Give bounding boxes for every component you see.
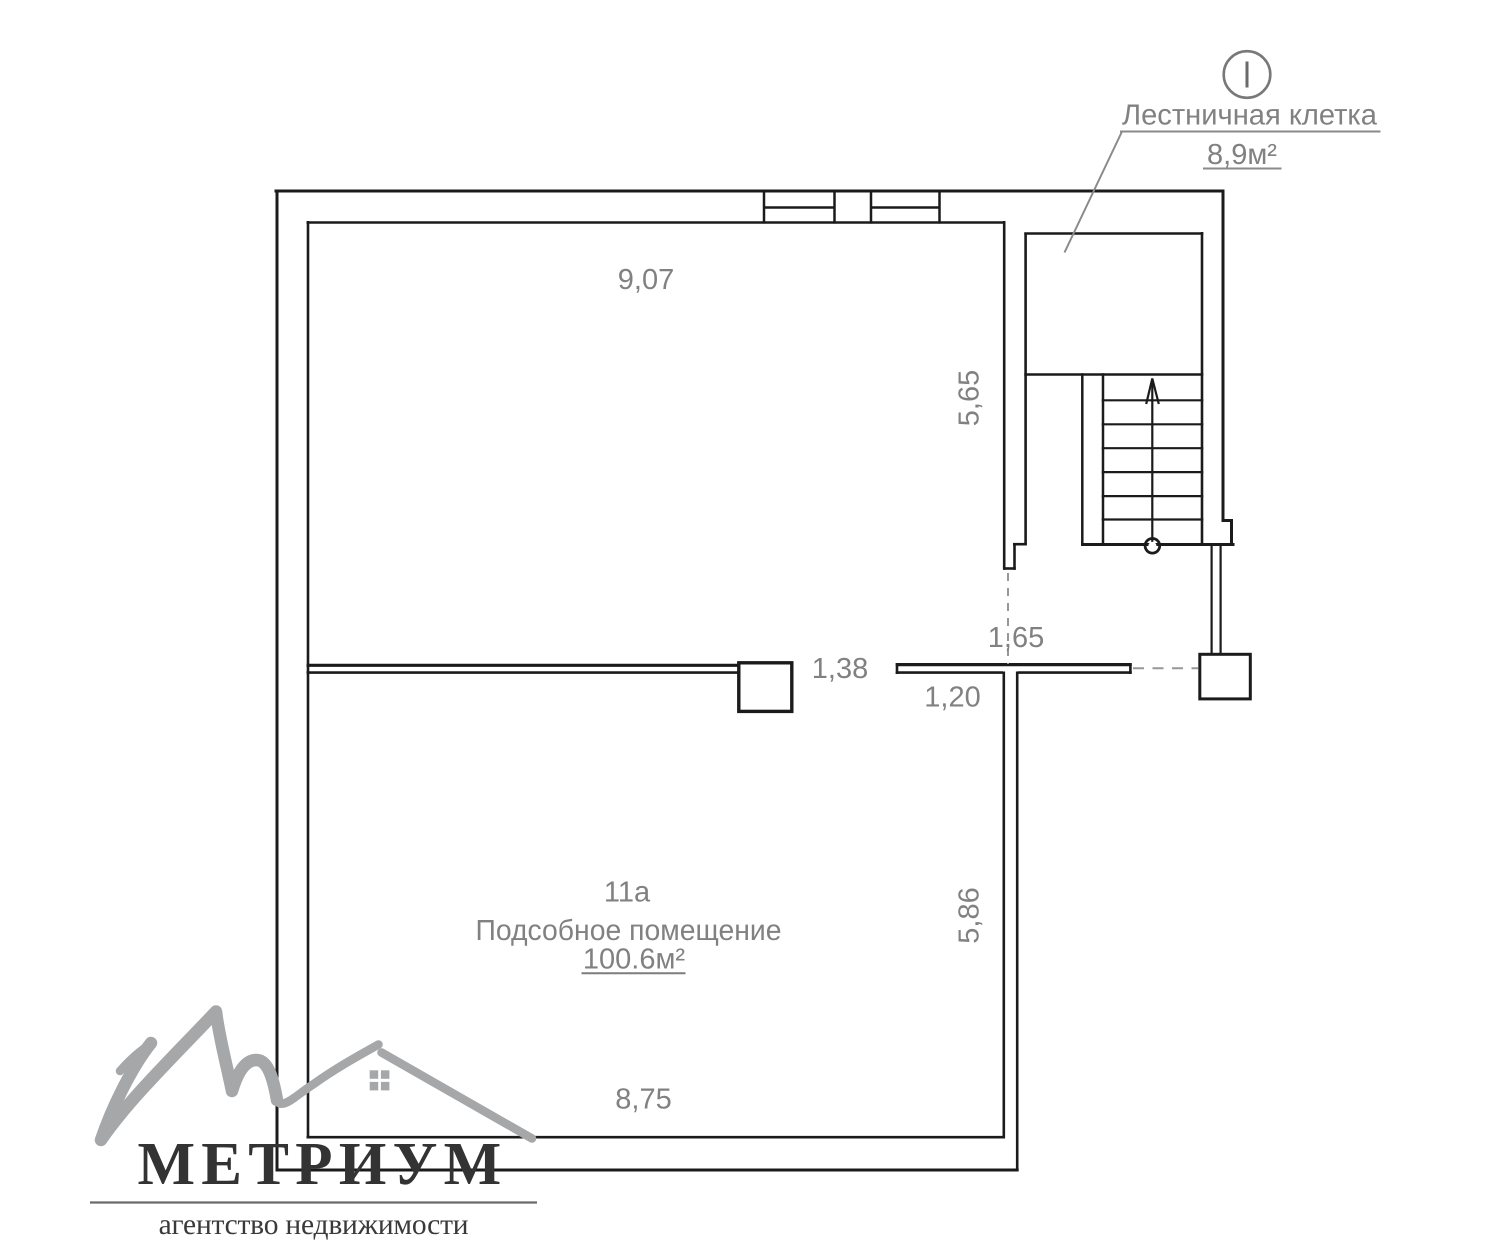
svg-text:5,65: 5,65 [954, 370, 986, 426]
svg-text:9,07: 9,07 [618, 264, 674, 296]
svg-text:8,9м²: 8,9м² [1207, 139, 1277, 171]
svg-text:агентство недвижимости: агентство недвижимости [159, 1209, 469, 1241]
svg-text:11a: 11a [604, 877, 651, 909]
svg-text:1,20: 1,20 [924, 682, 980, 714]
svg-text:МЕТРИУМ: МЕТРИУМ [137, 1131, 507, 1198]
svg-text:Подсобное помещение: Подсобное помещение [476, 915, 782, 947]
svg-text:5,86: 5,86 [954, 887, 986, 943]
svg-text:Лестничная клетка: Лестничная клетка [1122, 100, 1378, 132]
svg-text:1,65: 1,65 [988, 622, 1044, 654]
svg-text:100.6м²: 100.6м² [583, 944, 686, 976]
svg-text:8,75: 8,75 [615, 1084, 671, 1116]
svg-text:1,38: 1,38 [812, 653, 868, 685]
